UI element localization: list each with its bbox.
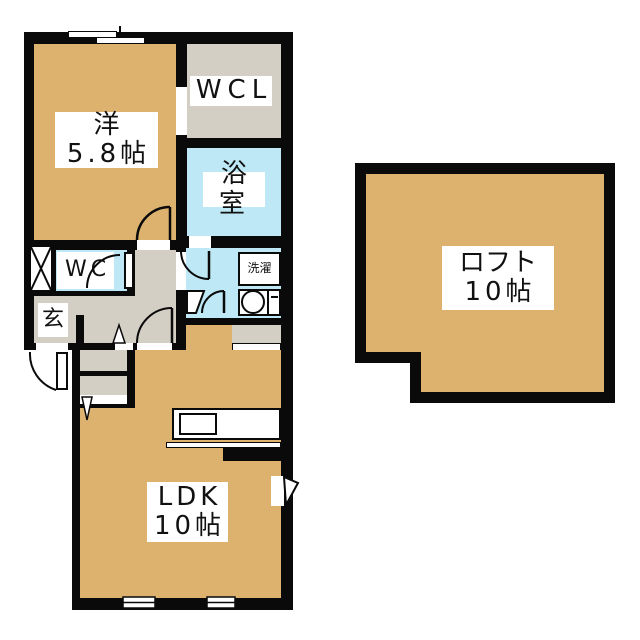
floorplan-canvas: 洗濯 洋 5.8帖 WCL 浴室 WC 玄 LDK 10帖 ロフト 10帖 <box>0 0 640 640</box>
label-room-ldk: LDK 10帖 <box>147 482 228 542</box>
window-top-pane-right <box>96 37 145 44</box>
bath-name: 浴室 <box>203 160 265 218</box>
door-opening-ldk-side <box>271 476 284 506</box>
entrance-door-leaf <box>56 352 68 390</box>
kitchen-sink <box>179 413 217 435</box>
door-opening-western <box>137 240 170 250</box>
genkan-name: 玄 <box>42 308 64 333</box>
stair-step-1 <box>80 350 127 371</box>
label-room-wc: WC <box>57 252 114 289</box>
ldk-name: LDK <box>154 483 222 512</box>
kitchen-half-wall <box>223 447 293 461</box>
western-size: 5.8帖 <box>63 140 150 169</box>
door-arc-entrance <box>30 352 56 390</box>
laundry-label: 洗濯 <box>247 262 271 275</box>
opening-hall-stairs <box>115 343 133 350</box>
label-room-loft: ロフト 10帖 <box>442 246 554 310</box>
label-room-bath: 浴室 <box>203 172 265 207</box>
loft-name: ロフト <box>459 249 537 278</box>
pipe-shaft <box>30 246 52 291</box>
room-loft-lower <box>421 352 604 392</box>
wcl-name: WCL <box>190 76 272 105</box>
door-opening-ldk <box>137 343 172 350</box>
door-opening-washroom <box>176 252 186 290</box>
loft-size: 10帖 <box>460 278 535 307</box>
laundry-box: 洗濯 <box>238 252 281 286</box>
stair-step-3 <box>80 395 127 404</box>
ldk-size: 10帖 <box>150 512 225 541</box>
genkan-wall-stub <box>76 315 84 343</box>
hallway-upper <box>135 250 176 296</box>
label-genkan: 玄 <box>38 303 68 337</box>
wc-name: WC <box>61 258 110 283</box>
sink-unit <box>238 289 281 316</box>
door-opening-bath <box>189 236 211 248</box>
door-opening-entrance <box>36 343 68 350</box>
wcl-sliding-door <box>176 87 187 135</box>
stair-step-2 <box>80 376 127 395</box>
label-room-western: 洋 5.8帖 <box>55 112 158 168</box>
label-room-wcl: WCL <box>190 76 272 106</box>
closet <box>232 325 281 343</box>
western-name: 洋 <box>93 111 119 140</box>
wc-door-leaf <box>124 252 134 289</box>
room-ldk-strip <box>186 325 232 352</box>
